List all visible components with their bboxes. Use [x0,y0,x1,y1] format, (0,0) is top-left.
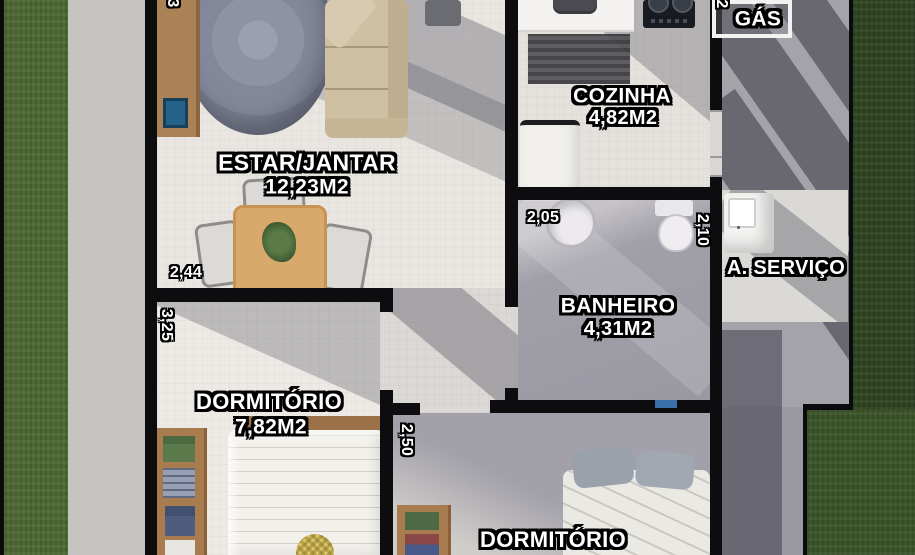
sofa-seam [325,88,388,90]
dim-living-width: 2,44 [170,265,202,281]
clothes-stack-green [163,436,195,462]
laundry-tank [724,193,774,253]
wall-dorm1-right [380,390,393,555]
cooktop [643,0,695,28]
window-sill-line [710,156,722,158]
dim-dorm2-depth: 2,50 [398,424,414,456]
house-shadow-band [722,330,782,555]
grass-left-strip [0,0,70,555]
tv [163,98,188,128]
laundry-drain [737,226,740,229]
corridor-floor [380,288,518,413]
room-area-estar: 12,23M2 [265,177,349,198]
room-label-estar: ESTAR/JANTAR [218,152,396,175]
property-edge-left [0,0,4,555]
kitchen-sink [553,0,597,14]
bed-dorm2-pillow [635,450,696,491]
grass-right-lower [807,410,915,555]
room-area-dorm1: 7,82M2 [235,417,307,438]
toilet-bowl [658,214,694,252]
wall-shelf-item-blue [655,400,677,408]
sofa-seam [325,46,388,48]
wall-kitchen-bathroom [518,187,710,200]
wall-right-exterior [710,0,722,555]
floor-plan: ESTAR/JANTAR 12,23M2 COZINHA 4,82M2 GÁS … [0,0,915,555]
room-label-cozinha: COZINHA [573,86,671,107]
room-label-gas: GÁS [735,9,781,30]
wall-living-dorm1 [157,288,393,302]
room-label-banheiro: BANHEIRO [561,296,675,317]
dim-bath-depth: 2,10 [694,214,710,246]
grass-right-upper [853,0,915,410]
clothes-stack-plaid [163,468,195,498]
cooktop-knobs [651,19,687,23]
clothes-stack-jeans [165,506,195,536]
side-table [425,0,461,26]
wall-dorm2-top [490,400,722,413]
burner [648,0,669,13]
clothes-stack-white [165,540,195,555]
wall-left-exterior [145,0,157,555]
dim-bath-width: 2,05 [527,210,559,226]
grass-border-right-lower [803,410,807,555]
wall-kitchen-living [505,0,518,307]
walkway-left [68,0,145,555]
kitchen-mat [528,34,630,84]
sofa [325,0,408,138]
room-area-cozinha: 4,82M2 [589,108,658,128]
room-label-servico: A. SERVIÇO [727,258,845,278]
room-area-banheiro: 4,31M2 [584,319,653,339]
closet-dorm1 [157,428,207,555]
sofa-chaise-cushion [325,0,378,50]
laundry-basin [728,198,756,228]
shelf-dorm2 [397,505,451,555]
dim-partial-top-left: 3 [164,0,180,8]
grass-border-right-upper [849,0,853,410]
burner [672,0,693,13]
sofa-armrest [325,118,408,138]
clothes-colored [405,534,439,555]
dim-dorm1-depth: 3,25 [158,309,174,341]
corridor-shadow [380,288,518,413]
kitchen-window [710,110,722,177]
wall-dorm1-corner-stub [380,288,393,312]
room-label-dorm1: DORMITÓRIO [196,391,342,413]
dim-partial-top-right: 2 [713,0,729,9]
bed-dorm2-pillow [571,445,635,489]
clothes-green [405,512,439,530]
wall-corridor-stub [393,403,420,415]
room-label-dorm2: DORMITÓRIO [480,529,626,551]
